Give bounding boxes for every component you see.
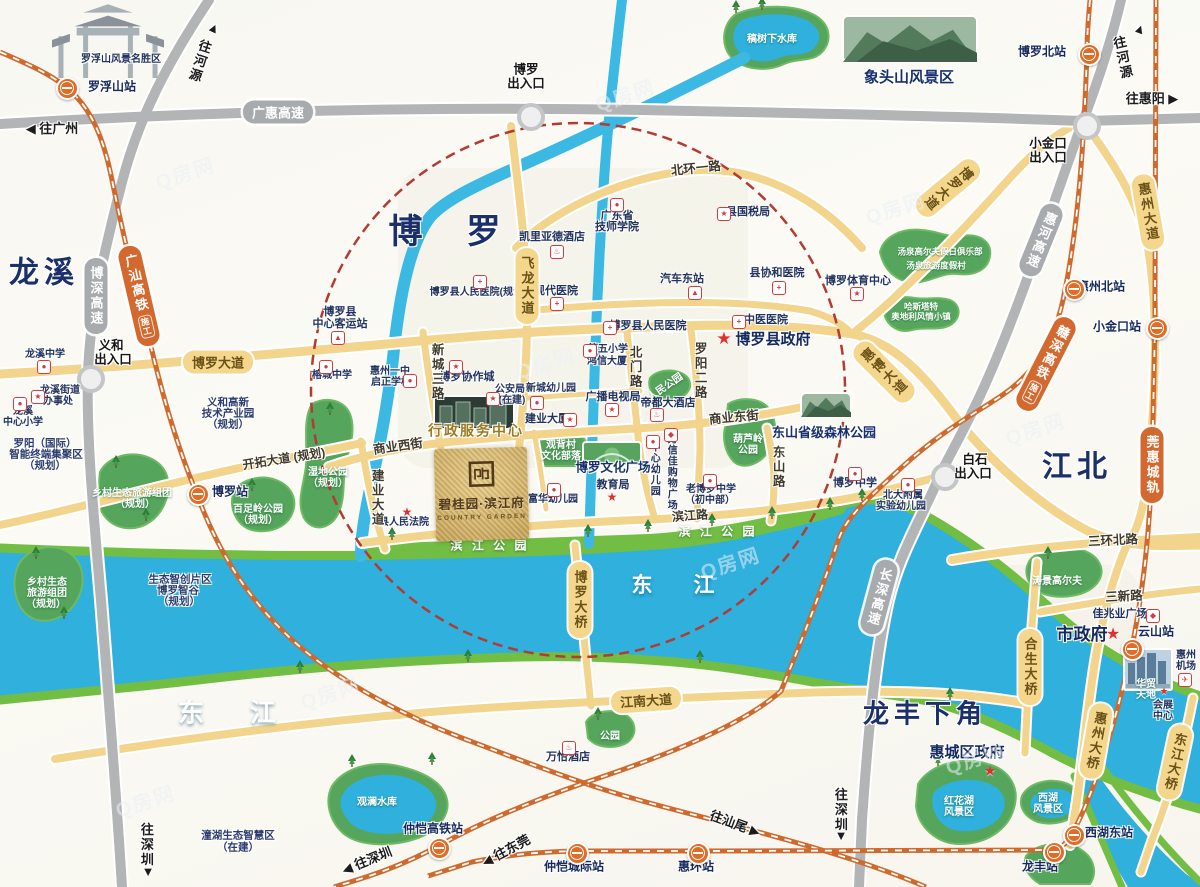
map-label: 建业大道 [369, 469, 382, 527]
map-label: （初中部） [685, 496, 735, 507]
map-label: （规划） [26, 600, 66, 611]
map-label: 博罗协作城 [440, 372, 495, 384]
map-label: 县协和医院 [750, 268, 805, 280]
map-label: ◀ 往广州 [26, 122, 79, 136]
map-label: 百足岭公园 [233, 505, 283, 516]
map-label: 风景区 [1033, 805, 1063, 816]
map-label: 罗浮山风景名胜区 [81, 55, 161, 66]
map-label: ▼ [142, 865, 155, 879]
map-label: 办事处 [43, 397, 73, 408]
map-label: ▼ [835, 829, 848, 843]
bus-icon: ▲ [331, 331, 345, 345]
shop-icon: ◆ [664, 428, 678, 442]
government-star-icon: ★ [716, 329, 731, 349]
map-label: 滨 江 公 园 [450, 540, 529, 553]
school-icon: ● [37, 360, 51, 374]
map-label: 稿树下水库 [747, 35, 797, 46]
hotel-icon: ♨ [650, 408, 664, 422]
map-label: 滨江路 [672, 508, 709, 523]
map-label: 观澜水库 [357, 798, 397, 809]
school-icon: ● [13, 397, 27, 411]
map-label: 往深圳 [139, 823, 153, 868]
map-label: 云山站 [1138, 626, 1174, 639]
map-label: 帝都大酒店 [641, 398, 696, 410]
map-label: 汤泉旅游度假村 [906, 262, 966, 271]
map-label: 东 江 [632, 575, 725, 597]
star-icon: ★ [486, 392, 500, 406]
map-label: 三环北路 [1088, 533, 1139, 549]
map-label: 中心客运站 [313, 319, 368, 331]
map-label: 县人民法院 [379, 518, 429, 529]
map-label: 红花湖 [944, 797, 974, 808]
map-label: 龙溪街道 [40, 386, 80, 397]
map-label: 博罗县人民医院 [610, 321, 687, 333]
interchange-node [1073, 112, 1101, 140]
map-label: 博 罗 [389, 215, 506, 251]
school-icon: ● [901, 478, 915, 492]
map-label: 湿地公园 [308, 468, 348, 479]
map-label: 罗阳二路 [692, 342, 705, 400]
map-label: （规划） [24, 460, 66, 471]
map-label: 葫芦岭 [733, 435, 763, 446]
school-icon: ● [703, 474, 717, 488]
school-icon: ● [547, 483, 561, 497]
map-label: （规划） [207, 419, 249, 430]
rail-station-icon [687, 842, 710, 865]
map-label: 中心 [1153, 712, 1173, 723]
map-label: 涛景高尔夫 [1032, 577, 1082, 588]
map-label: 乡村生态旅游组团 [92, 489, 172, 500]
map-label: 东山路 [770, 445, 783, 489]
rail-station-icon [1063, 824, 1086, 847]
map-label: 滨 江 公 园 [678, 526, 757, 539]
tree-icon [428, 752, 436, 765]
map-label: 新城三路 [429, 343, 442, 401]
map-label: 旅游组团 [27, 589, 67, 600]
road-pill: 博罗大桥 [569, 562, 592, 638]
map-label: 博罗北站 [1018, 46, 1066, 59]
project-seal-icon [468, 461, 495, 488]
map-label: 往深圳 [833, 788, 847, 833]
location-map: 罗浮山风景名胜区罗浮山站◀ 往广州往河源▲龙溪博 罗往河源▲往惠阳 ▶稿树下水库… [0, 0, 1200, 887]
star-icon: ★ [31, 390, 45, 404]
map-label: 三新路 [1105, 589, 1143, 604]
interchange-node [517, 103, 545, 131]
school-icon: ● [848, 467, 862, 481]
map-label: 博罗县人民医院(规划) [430, 288, 527, 299]
government-star-icon: ★ [1160, 687, 1169, 698]
boshen-expressway-casing [88, 0, 209, 887]
map-label: 西湖 [1038, 794, 1058, 805]
map-label: 潼湖生态智慧区 [201, 830, 275, 841]
map-label: （规划） [238, 516, 278, 527]
hotel-icon: ♨ [550, 245, 564, 259]
map-label: 小金口站 [1093, 321, 1141, 334]
map-label: 凯里亚德酒店 [519, 232, 585, 244]
map-label: 龙溪 [9, 257, 79, 289]
shop-icon: ◆ [1146, 609, 1160, 623]
map-label: 行政服务中心 [428, 424, 524, 439]
rail-station-icon [1146, 317, 1169, 340]
map-label: （规划） [115, 500, 155, 511]
bus-icon: ▲ [688, 286, 702, 300]
map-label: （规划） [308, 479, 348, 490]
map-label: 小金口 [1029, 137, 1067, 150]
map-label: 西湖东站 [1085, 827, 1133, 840]
project-title: 碧桂园·滨江府 [438, 492, 525, 513]
school-icon: ● [646, 435, 660, 449]
hosp-icon: + [473, 275, 487, 289]
hosp-icon: + [772, 281, 786, 295]
air-icon: ✈ [1178, 673, 1192, 687]
map-label: 博罗县政府 [735, 332, 810, 348]
map-label: (在建) [499, 396, 526, 407]
map-label: 佳兆业广场 [1093, 609, 1148, 621]
map-geometry [0, 0, 1200, 887]
road-pill: 合生大桥 [1019, 629, 1042, 705]
map-label: 象头山风景区 [864, 70, 954, 86]
project-subtitle: COUNTRY GARDEN [437, 513, 527, 522]
map-label: 龙丰下角 [863, 700, 987, 727]
map-label: 仲恺高铁站 [403, 823, 463, 836]
map-label: 罗浮山站 [88, 81, 136, 94]
road-pill: 江南大道 [610, 686, 681, 714]
rail-station-icon [56, 77, 79, 100]
government-star-icon: ★ [984, 763, 997, 780]
expressway-pill: 博深高速 [85, 258, 108, 334]
star-icon: ★ [605, 403, 619, 417]
rail-station-icon [1043, 841, 1066, 864]
map-label: 北门路 [627, 345, 640, 389]
star-icon: ★ [449, 360, 463, 374]
hosp-icon: + [550, 297, 564, 311]
map-label: 风景区 [944, 808, 974, 819]
map-label: 出入口 [954, 467, 992, 480]
map-label: 万信佳购物广场 [665, 434, 676, 511]
map-label: 公园 [600, 732, 620, 743]
map-label: 出入口 [507, 77, 545, 90]
star-icon: ★ [563, 413, 577, 427]
map-label: 中心小学 [3, 418, 43, 429]
map-label: 出入口 [94, 353, 132, 366]
xiangtoushan-photo [843, 16, 977, 62]
map-label: （规划） [158, 596, 200, 607]
hosp-icon: + [732, 315, 746, 329]
map-label: 技师学院 [595, 222, 639, 234]
luofushan-gate-image [52, 4, 164, 78]
map-label: 中心幼儿园 [648, 442, 659, 497]
rail-station-icon [1121, 638, 1144, 661]
map-label: 东山省级森林公园 [772, 426, 876, 440]
map-label: 东 江 [178, 699, 286, 726]
road-pill: 博罗大道 [183, 351, 253, 374]
map-label: 会展 [1153, 701, 1173, 712]
map-label: 博罗 [513, 63, 538, 76]
map-label: 汽车东站 [660, 274, 704, 286]
map-label: 博罗站 [212, 486, 248, 499]
star-icon: ★ [850, 287, 864, 301]
map-label: 往惠阳 ▶ [1126, 92, 1179, 106]
star-icon: ★ [717, 207, 731, 221]
map-label: 中医医院 [744, 315, 788, 327]
rail-station-icon [566, 842, 589, 865]
government-star-icon: ★ [607, 490, 618, 504]
map-label: 观背村 [546, 441, 576, 452]
railway-pill: 莞惠城轨 [1141, 427, 1164, 503]
interchange-node [77, 365, 105, 393]
map-label: 博罗文化广场 [575, 461, 650, 474]
school-icon: ● [583, 344, 597, 358]
map-label: 乡村生态 [27, 578, 67, 589]
map-label: 博罗县 [324, 307, 357, 319]
map-label: 北大附属 [883, 491, 923, 502]
school-icon: ● [530, 396, 544, 410]
map-label: 惠城区政府 [929, 745, 1004, 761]
school-icon: ● [610, 198, 624, 212]
map-label: 市政府 [1057, 626, 1108, 644]
map-label: 龙溪中学 [25, 350, 65, 361]
expressway-pill: 广惠高速 [243, 101, 313, 124]
map-label: （在建） [217, 842, 259, 853]
map-label: 奥地利风情小镇 [891, 313, 951, 322]
tree-icon [732, 0, 740, 13]
rail-station-icon [1063, 278, 1086, 301]
rail-station-icon [187, 483, 210, 506]
map-label: 新城幼儿园 [526, 384, 576, 395]
road-pill: 飞龙大道 [516, 248, 539, 324]
map-label: 哈斯塔特 [904, 303, 938, 312]
government-star-icon: ★ [1106, 624, 1120, 644]
map-label: 义和 [98, 339, 123, 352]
map-label: 江北 [1042, 451, 1112, 483]
tree-icon [348, 754, 356, 767]
map-label: 实验幼儿园 [876, 502, 926, 513]
map-label: 鸿信大厦 [587, 357, 627, 368]
map-label: 汤泉高尔夫假日俱乐部 [897, 248, 982, 257]
rail-station-icon [1078, 43, 1101, 66]
map-label: 公园 [738, 446, 758, 457]
dongshan-forest-photo [801, 393, 851, 417]
rail-station-icon [428, 837, 451, 860]
hotel-icon: ♨ [562, 741, 576, 755]
map-label: 华贸 [1136, 680, 1156, 691]
hosp-icon: + [603, 321, 617, 335]
map-label: 白石 [962, 453, 987, 466]
map-label: 出入口 [1029, 151, 1067, 164]
school-icon: ● [319, 360, 333, 374]
map-label: 惠州 [1176, 651, 1196, 662]
government-star-icon: ★ [402, 505, 413, 519]
project-marker: 碧桂园·滨江府 COUNTRY GARDEN [434, 447, 529, 541]
map-label: 县国税局 [726, 207, 770, 219]
map-label: 机场 [1176, 662, 1196, 673]
school-icon: ● [403, 374, 417, 388]
